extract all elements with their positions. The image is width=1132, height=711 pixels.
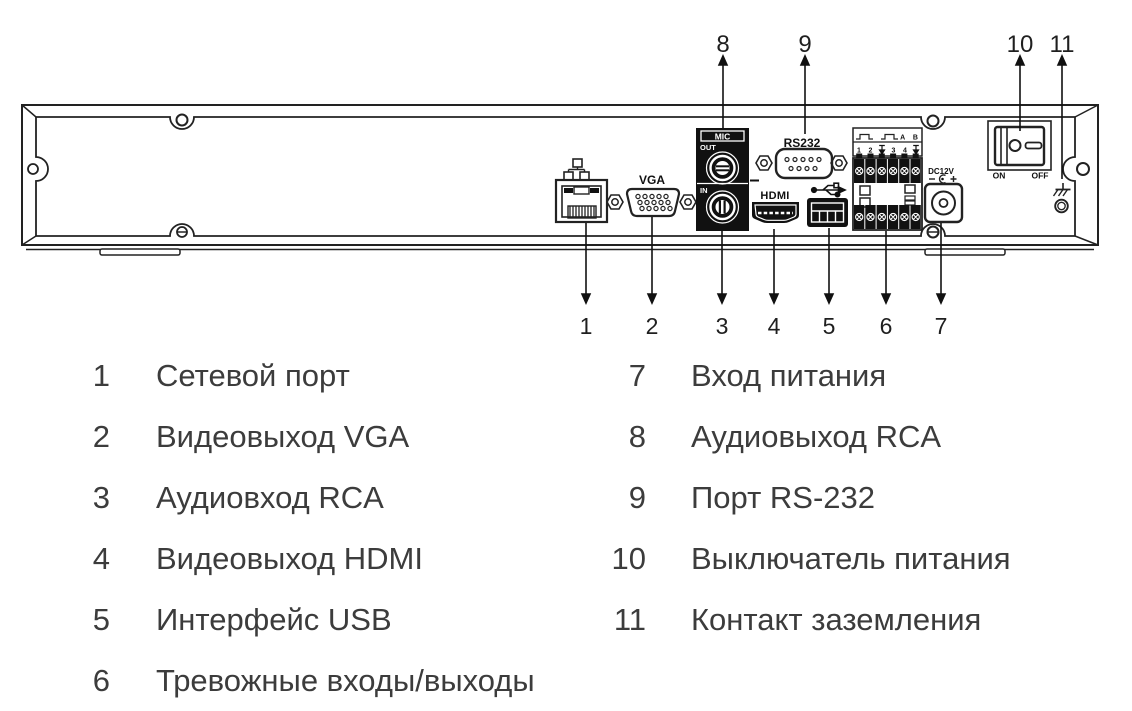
legend-item: 7 Вход питания — [580, 345, 1011, 406]
legend-item-number: 2 — [60, 419, 110, 455]
legend-item: 5 Интерфейс USB — [60, 589, 535, 650]
legend-item: 6 Тревожные входы/выходы — [60, 650, 535, 711]
on-label: ON — [993, 171, 1006, 181]
legend-item-label: Сетевой порт — [156, 358, 350, 394]
alarm-terminal-block: A B 1 2 3 4 — [853, 128, 922, 230]
legend-item-label: Выключатель питания — [691, 541, 1011, 577]
svg-text:1: 1 — [857, 148, 861, 155]
callout-number-9: 9 — [798, 31, 811, 58]
rear-panel-diagram: VGA MIC OUT IN — [0, 0, 1132, 345]
callout-number-7: 7 — [935, 313, 948, 339]
mic-in-label: IN — [700, 186, 708, 195]
legend-item-label: Аудиовыход RCA — [691, 419, 941, 455]
callout-number-3: 3 — [716, 313, 729, 339]
hdmi-label: HDMI — [760, 190, 789, 202]
legend-item-number: 8 — [580, 419, 646, 455]
terminal-ab-label: A B — [900, 135, 921, 142]
vga-label: VGA — [639, 173, 665, 187]
off-label: OFF — [1032, 171, 1049, 181]
legend-item: 2 Видеовыход VGA — [60, 406, 535, 467]
manual-page: VGA MIC OUT IN — [0, 0, 1132, 710]
legend-item: 10 Выключатель питания — [580, 528, 1011, 589]
legend-item-label: Тревожные входы/выходы — [156, 663, 535, 699]
svg-text:2: 2 — [869, 148, 873, 155]
chassis-foot — [100, 249, 180, 255]
legend-item-number: 4 — [60, 541, 110, 577]
legend-item: 1 Сетевой порт — [60, 345, 535, 406]
legend-item-number: 11 — [580, 602, 646, 638]
legend-item-number: 3 — [60, 480, 110, 516]
chassis-foot — [925, 249, 1005, 255]
svg-text:3: 3 — [892, 148, 896, 155]
legend-item-number: 10 — [580, 541, 646, 577]
legend-item-label: Контакт заземления — [691, 602, 981, 638]
callout-number-5: 5 — [823, 313, 836, 339]
dc12v-label: DC12V — [928, 167, 954, 176]
callout-number-2: 2 — [646, 313, 659, 339]
legend-item: 3 Аудиовход RCA — [60, 467, 535, 528]
legend: 1 Сетевой порт 2 Видеовыход VGA 3 Аудиов… — [0, 345, 1132, 710]
usb-port — [807, 183, 848, 227]
callout-number-10: 10 — [1007, 31, 1034, 58]
legend-item: 8 Аудиовыход RCA — [580, 406, 1011, 467]
legend-item-number: 9 — [580, 480, 646, 516]
rca-in-connector — [707, 191, 739, 223]
callout-number-8: 8 — [716, 31, 729, 58]
callout-number-6: 6 — [880, 313, 893, 339]
legend-item: 9 Порт RS-232 — [580, 467, 1011, 528]
legend-item-label: Порт RS-232 — [691, 480, 875, 516]
legend-item-label: Аудиовход RCA — [156, 480, 384, 516]
mic-out-label: OUT — [700, 143, 716, 152]
callout-number-4: 4 — [768, 313, 781, 339]
svg-text:4: 4 — [903, 148, 907, 155]
legend-item-number: 1 — [60, 358, 110, 394]
legend-item-number: 6 — [60, 663, 110, 699]
rca-out-connector — [707, 152, 739, 184]
legend-item-number: 7 — [580, 358, 646, 394]
legend-item-label: Интерфейс USB — [156, 602, 392, 638]
callout-number-1: 1 — [580, 313, 593, 339]
legend-item-number: 5 — [60, 602, 110, 638]
legend-item: 4 Видеовыход HDMI — [60, 528, 535, 589]
legend-column-right: 7 Вход питания 8 Аудиовыход RCA 9 Порт R… — [580, 345, 1011, 650]
mic-label: MIC — [715, 131, 731, 141]
legend-item: 11 Контакт заземления — [580, 589, 1011, 650]
legend-item-label: Вход питания — [691, 358, 886, 394]
legend-item-label: Видеовыход VGA — [156, 419, 409, 455]
legend-item-label: Видеовыход HDMI — [156, 541, 423, 577]
legend-column-left: 1 Сетевой порт 2 Видеовыход VGA 3 Аудиов… — [60, 345, 535, 711]
callout-number-11: 11 — [1050, 31, 1075, 58]
